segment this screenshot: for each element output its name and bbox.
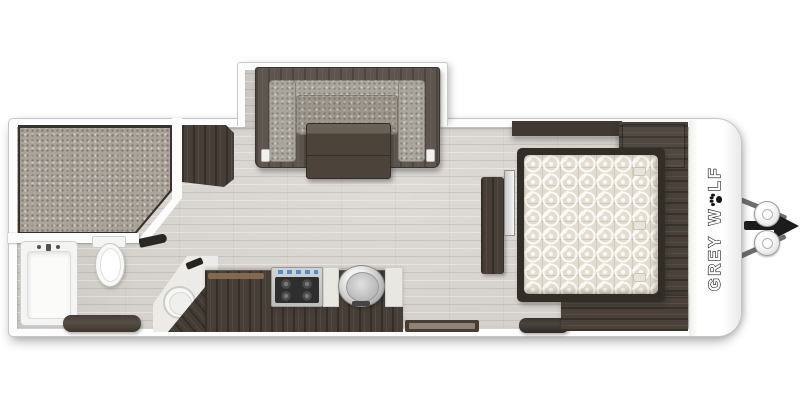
toilet-seat <box>100 248 121 282</box>
front-wardrobe <box>182 125 234 187</box>
toilet <box>95 243 125 287</box>
bunk-mattress <box>20 128 170 232</box>
floorplan-stage: GREY W LF <box>0 0 800 400</box>
propane-tank-icon <box>754 230 780 256</box>
vanity-bench <box>63 315 141 332</box>
tub-handle-icon <box>37 245 41 249</box>
tv-console <box>481 177 504 274</box>
tub-handle-icon <box>56 245 60 249</box>
bunk-bed-frame <box>18 125 172 234</box>
cutting-board <box>208 273 264 279</box>
propane-tank-icon <box>754 201 780 227</box>
bathtub <box>20 241 78 326</box>
cabinet-handle <box>633 167 646 176</box>
tv <box>504 170 515 236</box>
brand-lettering: GREY W LF <box>706 165 725 290</box>
dinette-table <box>306 123 391 179</box>
counter-section <box>385 267 403 307</box>
bathtub-basin <box>27 251 71 319</box>
sink-faucet-icon <box>352 301 370 306</box>
entry-door-step <box>409 323 475 329</box>
cooktop-burners <box>275 277 319 303</box>
cooktop-knobs <box>278 270 318 274</box>
counter-section <box>323 267 339 307</box>
sofa-foot <box>426 149 435 162</box>
brand-word-lf: LF <box>706 165 725 190</box>
brand-word-w: W <box>706 207 725 225</box>
front-cap: GREY W LF <box>689 120 741 336</box>
paw-print-icon <box>708 193 722 206</box>
cabinet-handle <box>633 221 646 230</box>
cooktop <box>271 267 323 307</box>
sofa-foot <box>261 149 270 162</box>
entry-door-mat <box>405 320 479 332</box>
sofa-armrest-left <box>269 80 296 162</box>
overhead-cabinet <box>512 121 622 136</box>
cabinet-handle <box>633 273 646 282</box>
tub-faucet-icon <box>46 244 51 251</box>
brand-word-grey: GREY <box>706 234 725 291</box>
sofa-armrest-right <box>398 80 425 162</box>
